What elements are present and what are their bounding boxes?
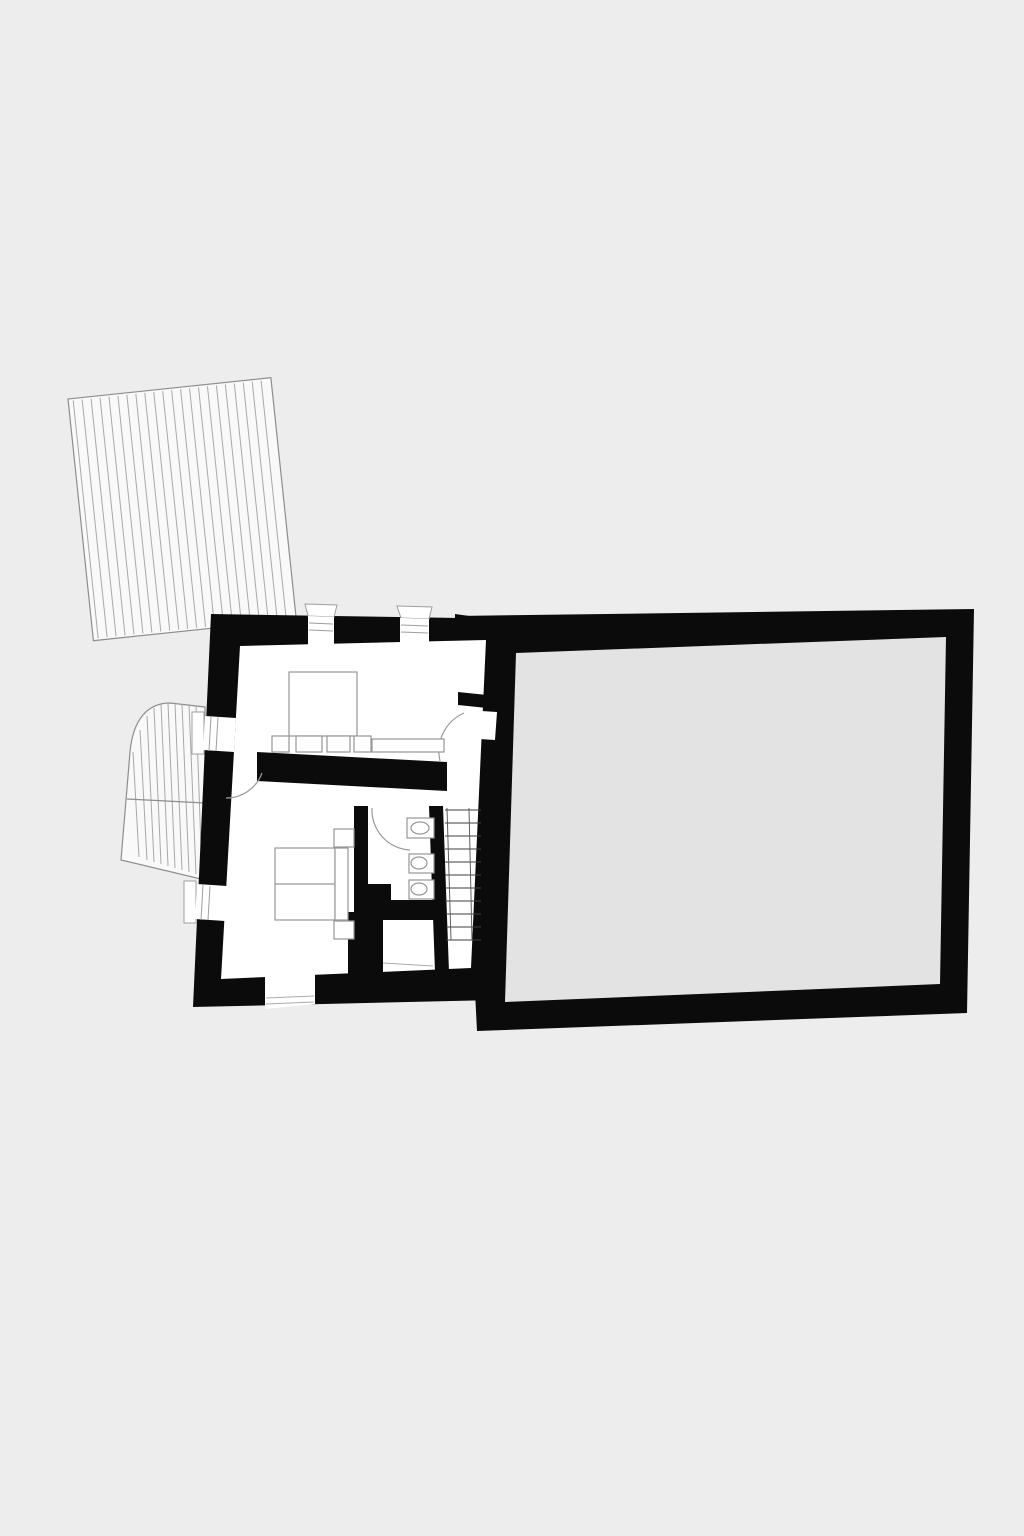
window-opening	[308, 616, 334, 648]
window-sill	[192, 712, 204, 754]
annex-hall	[456, 609, 974, 1031]
main-building	[184, 604, 513, 1009]
window-sill	[184, 881, 196, 923]
bathroom-bottom-wall	[368, 900, 443, 920]
annex-floor	[505, 637, 946, 1002]
sideboard-segment	[354, 736, 371, 752]
nightstand	[334, 829, 354, 847]
headboard	[335, 848, 348, 920]
window-opening	[195, 884, 227, 921]
nightstand	[334, 921, 354, 939]
door-opening	[464, 710, 497, 740]
floor-plan-page	[0, 0, 1024, 1536]
toilet-bowl	[411, 857, 427, 869]
floor-plan-canvas	[0, 0, 1024, 1536]
bathroom-fixtures	[407, 818, 434, 899]
window-opening	[400, 618, 429, 645]
bed	[289, 672, 357, 736]
sideboard-segment	[272, 736, 289, 752]
entrance-door	[265, 974, 315, 1009]
window-sill	[397, 606, 432, 619]
hatched-roof-area	[68, 378, 296, 641]
sideboard-ledge	[372, 739, 444, 752]
sideboard-segment	[327, 736, 350, 752]
bidet-bowl	[411, 883, 427, 895]
sideboard-segment	[296, 736, 322, 752]
sink-basin	[411, 822, 429, 834]
window-sill	[305, 604, 337, 617]
window-opening	[203, 716, 236, 752]
